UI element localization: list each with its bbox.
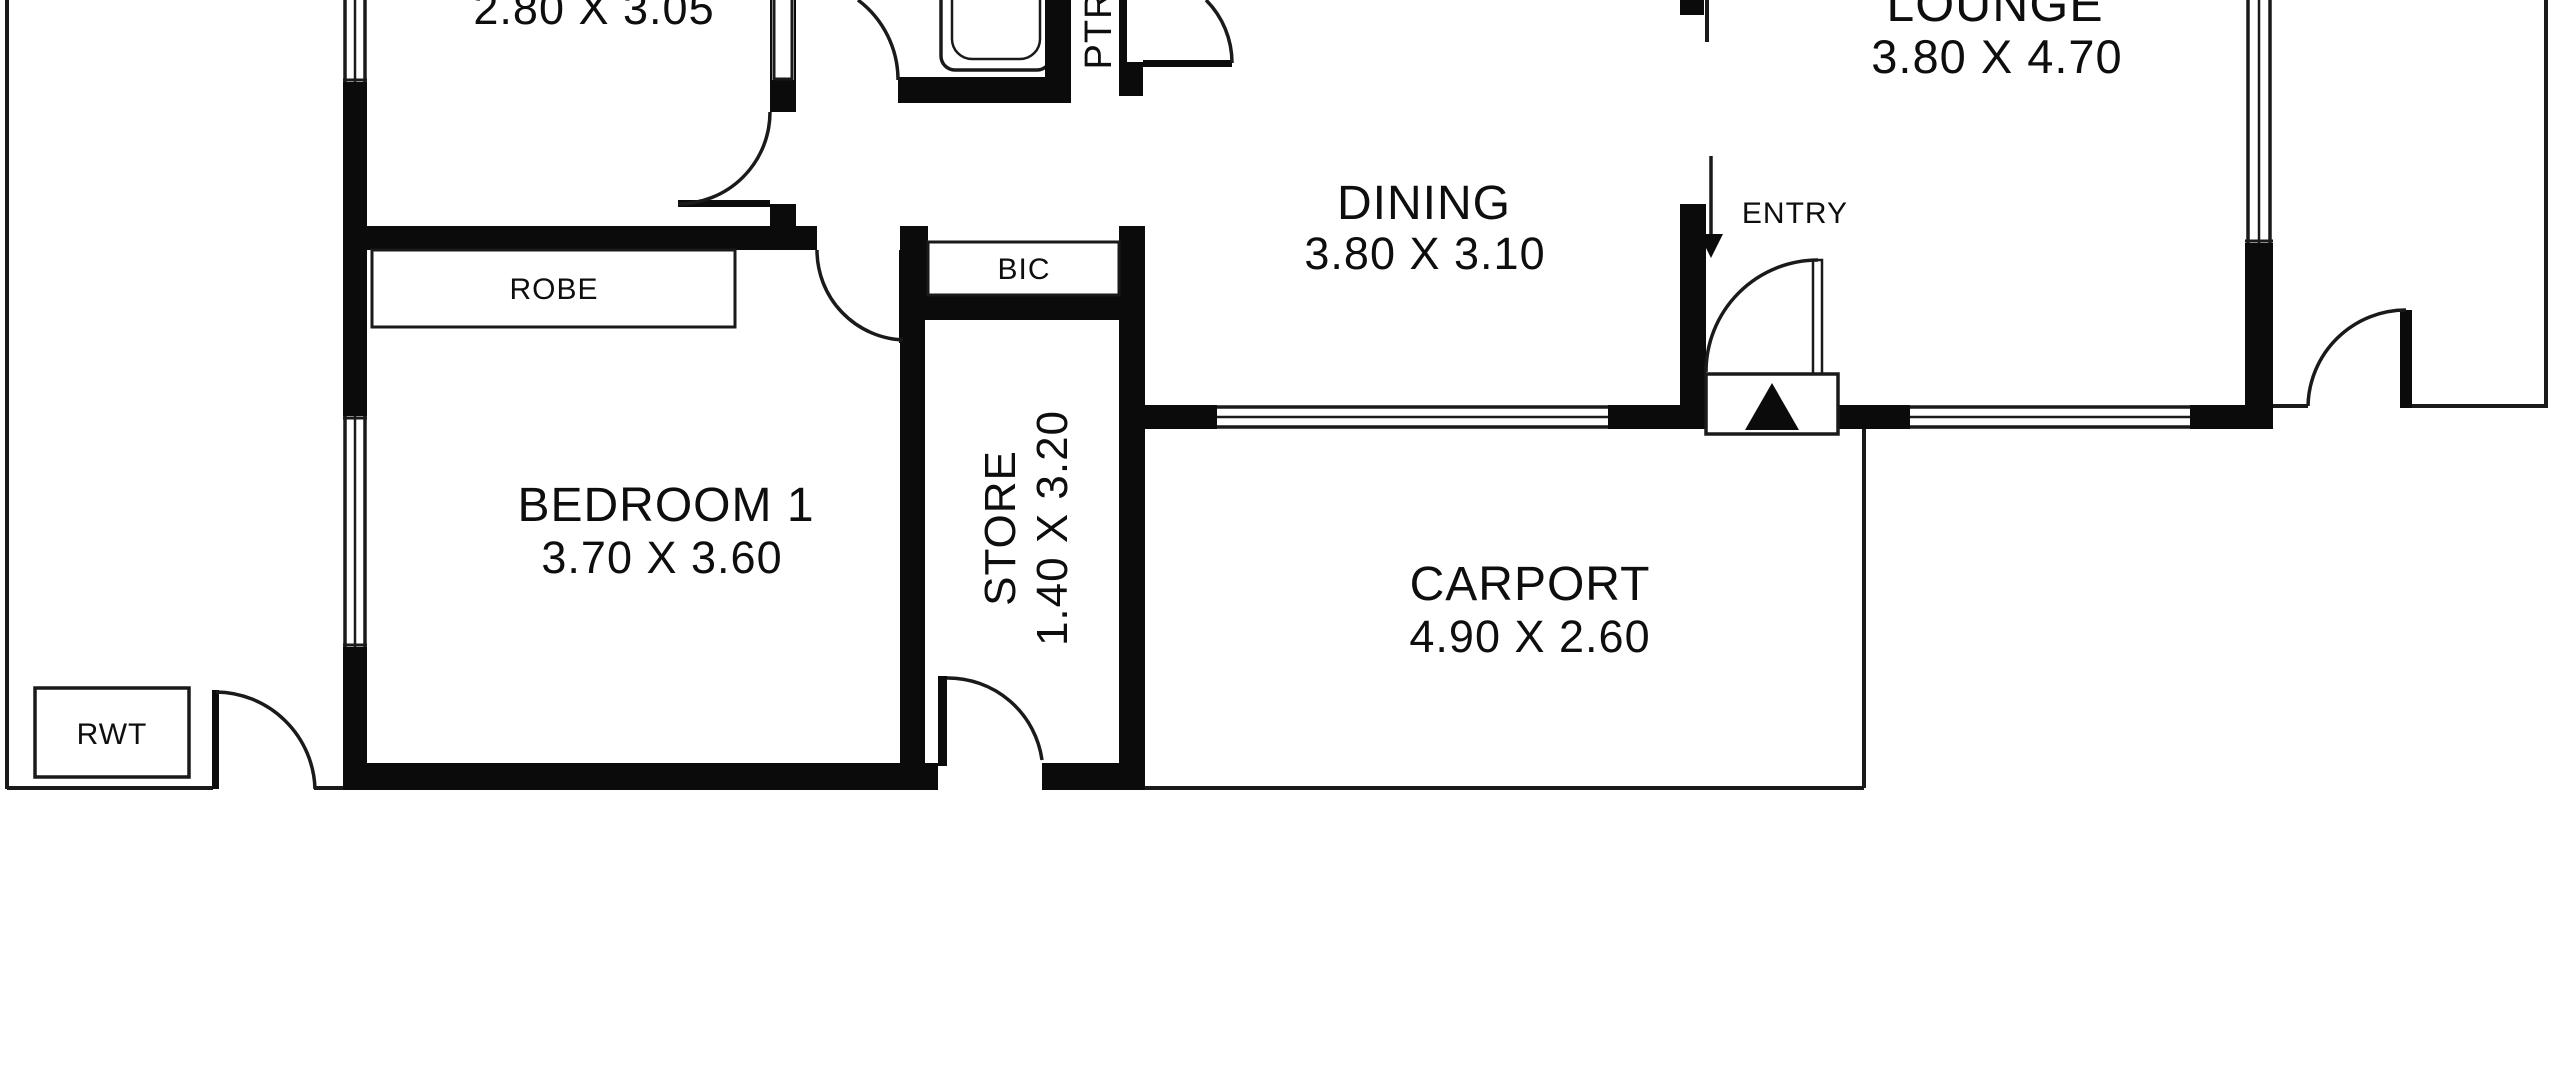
room-label-carport: CARPORT: [1410, 558, 1651, 611]
wall: [1042, 763, 1145, 790]
wall: [1119, 0, 1127, 62]
wall: [1119, 226, 1145, 767]
room-dims-lounge: 3.80 X 4.70: [1871, 30, 2122, 83]
bath-door-panel: [772, 0, 794, 80]
room-label-lounge: LOUNGE: [1886, 0, 2103, 32]
door-panel: [2400, 310, 2412, 408]
wall: [770, 204, 796, 250]
room-dims-store: 1.40 X 3.20: [1028, 410, 1077, 646]
door-panel: [1813, 260, 1822, 374]
room-dims-carport: 4.90 X 2.60: [1409, 611, 1650, 662]
wall: [2245, 243, 2273, 429]
wall: [1119, 62, 1143, 96]
window: [1910, 405, 2190, 429]
door-panel: [899, 250, 907, 343]
wall: [343, 647, 367, 790]
window: [1217, 405, 1608, 429]
wall: [1680, 0, 1704, 15]
door-panel: [1143, 60, 1232, 67]
wall: [1143, 405, 1217, 429]
label-bic: BIC: [997, 253, 1050, 286]
wall: [343, 82, 367, 229]
floorplan-page: 2.80 X 3.05 LOUNGE 3.80 X 4.70 DINING 3.…: [0, 0, 2560, 1075]
room-dims-bedroom2: 2.80 X 3.05: [473, 0, 714, 34]
room-label-dining: DINING: [1337, 177, 1511, 230]
window: [343, 0, 367, 82]
wall: [343, 226, 817, 250]
label-entry: ENTRY: [1742, 197, 1848, 230]
wall: [343, 250, 367, 416]
label-ptr: PTR: [1078, 0, 1120, 70]
entry-porch: [1706, 374, 1838, 434]
room-label-bedroom1: BEDROOM 1: [517, 479, 814, 532]
door-panel: [212, 690, 219, 789]
plan-background: [0, 0, 2560, 1075]
wall: [900, 320, 925, 767]
room-dims-dining: 3.80 X 3.10: [1304, 228, 1545, 279]
bathtub-icon: [941, 0, 1051, 70]
wall: [900, 295, 1145, 320]
room-label-store: STORE: [976, 450, 1025, 606]
label-robe: ROBE: [509, 273, 598, 306]
room-dims-bedroom1: 3.70 X 3.60: [541, 532, 782, 583]
floorplan-drawing: 2.80 X 3.05 LOUNGE 3.80 X 4.70 DINING 3.…: [0, 0, 2560, 1075]
wall: [367, 763, 938, 790]
window: [343, 416, 367, 647]
window: [2245, 0, 2273, 243]
wall: [1045, 0, 1071, 103]
door-panel: [938, 676, 947, 766]
label-rwt: RWT: [77, 718, 148, 751]
wall: [1608, 405, 1712, 429]
